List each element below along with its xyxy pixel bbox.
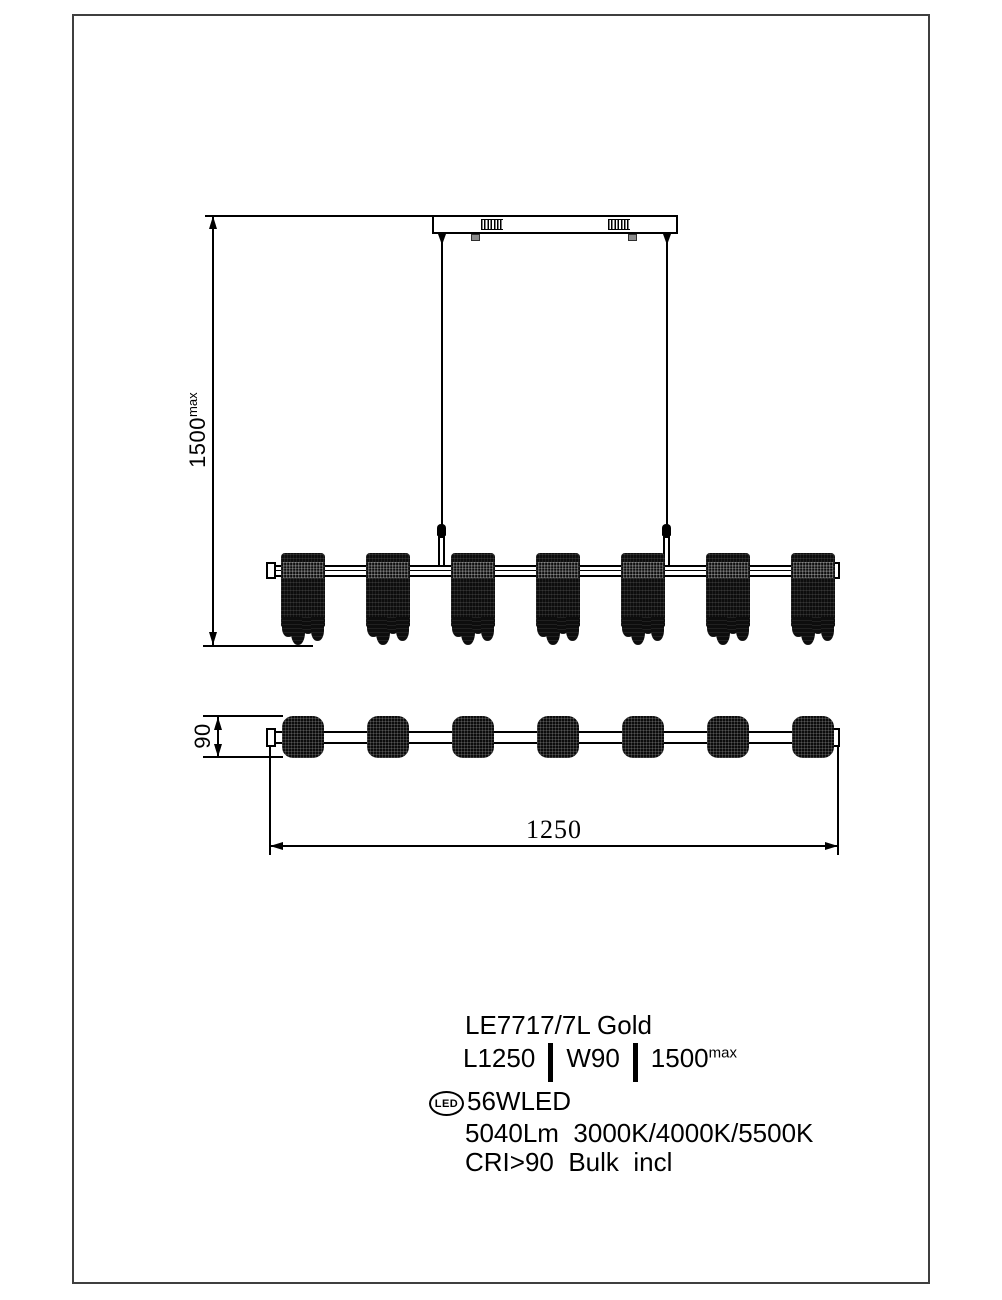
suspension-wire — [666, 240, 668, 526]
vent-grid-icon — [481, 219, 503, 230]
dim-width-label: 90 — [190, 706, 216, 766]
crystal-shade-top — [452, 716, 494, 758]
crystal-shade-top — [282, 716, 324, 758]
shade-fringe — [396, 617, 409, 641]
crystal-shade-front — [451, 553, 495, 627]
size-summary-row: L1250 W90 1500max — [463, 1043, 737, 1082]
shade-fringe — [566, 617, 579, 641]
separator-bar — [633, 1043, 638, 1082]
lumens-color-temp: 5040Lm 3000K/4000K/5500K — [465, 1118, 813, 1149]
technical-drawing-page: 1500max 90 1250 LE7717/7L Gold L1250 W90… — [0, 0, 1002, 1300]
crystal-shade-top — [622, 716, 664, 758]
shade-fringe — [311, 617, 324, 641]
crystal-shade-front — [791, 553, 835, 627]
separator-bar — [548, 1043, 553, 1082]
dim-length-label: 1250 — [504, 815, 604, 845]
crystal-shade-top — [367, 716, 409, 758]
canopy-connector — [628, 234, 637, 241]
dim-height-arrow-bottom — [209, 632, 217, 645]
ceiling-canopy — [432, 215, 678, 234]
crystal-shade-front — [706, 553, 750, 627]
crystal-shade-front — [621, 553, 665, 627]
shade-fringe — [821, 617, 834, 641]
shade-fringe — [651, 617, 664, 641]
crystal-shade-front — [281, 553, 325, 627]
crystal-shade-top — [537, 716, 579, 758]
dim-height-label: 1500max — [185, 355, 211, 505]
crystal-shade-front — [366, 553, 410, 627]
led-badge-icon: LED — [429, 1091, 464, 1116]
dim-length-extension-right — [837, 747, 839, 855]
bar-endcap-left-top — [266, 728, 276, 747]
dim-height-extension-top — [205, 215, 432, 217]
dim-height-arrow-top — [209, 216, 217, 229]
crystal-shade-top — [707, 716, 749, 758]
dim-length-arrow-left — [270, 842, 283, 850]
dim-length-extension-left — [269, 747, 271, 855]
suspension-wire — [441, 240, 443, 526]
shade-fringe — [736, 617, 749, 641]
crystal-shade-front — [536, 553, 580, 627]
dim-length-line — [270, 845, 838, 847]
dim-height-extension-bottom — [203, 645, 313, 647]
dim-height-line — [212, 216, 214, 645]
vent-grid-icon — [608, 219, 630, 230]
power-rating: 56WLED — [467, 1086, 571, 1117]
rod-cap — [437, 524, 446, 536]
bar-endcap-left — [266, 562, 276, 579]
rod-cap — [662, 524, 671, 536]
cri-bulb-info: CRI>90 Bulk incl — [465, 1147, 672, 1178]
canopy-connector — [471, 234, 480, 241]
size-width: W90 — [566, 1043, 619, 1074]
size-length: L1250 — [463, 1043, 535, 1074]
dim-length-arrow-right — [825, 842, 838, 850]
shade-fringe — [481, 617, 494, 641]
size-height: 1500max — [651, 1043, 737, 1074]
crystal-shade-top — [792, 716, 834, 758]
model-name: LE7717/7L Gold — [465, 1010, 652, 1041]
